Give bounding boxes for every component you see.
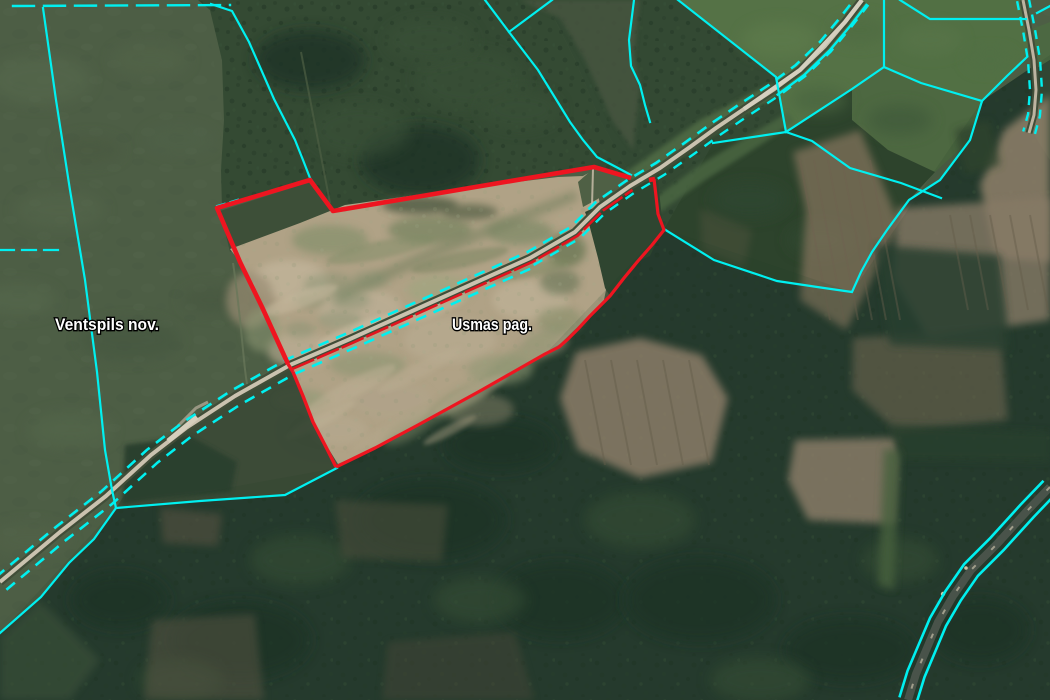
svg-text:Usmas pag.: Usmas pag. (452, 315, 532, 334)
svg-text:Ventspils nov.: Ventspils nov. (55, 315, 159, 334)
